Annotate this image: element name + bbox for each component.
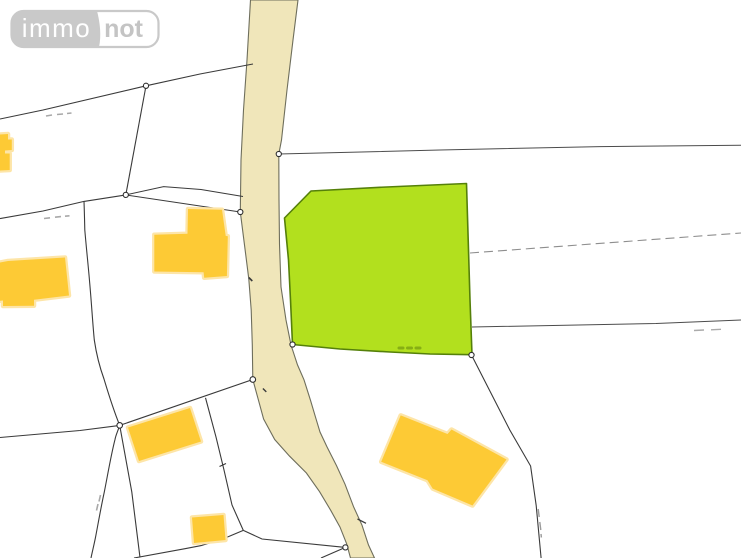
svg-text:not: not bbox=[104, 15, 144, 43]
svg-text:immo: immo bbox=[22, 13, 92, 43]
